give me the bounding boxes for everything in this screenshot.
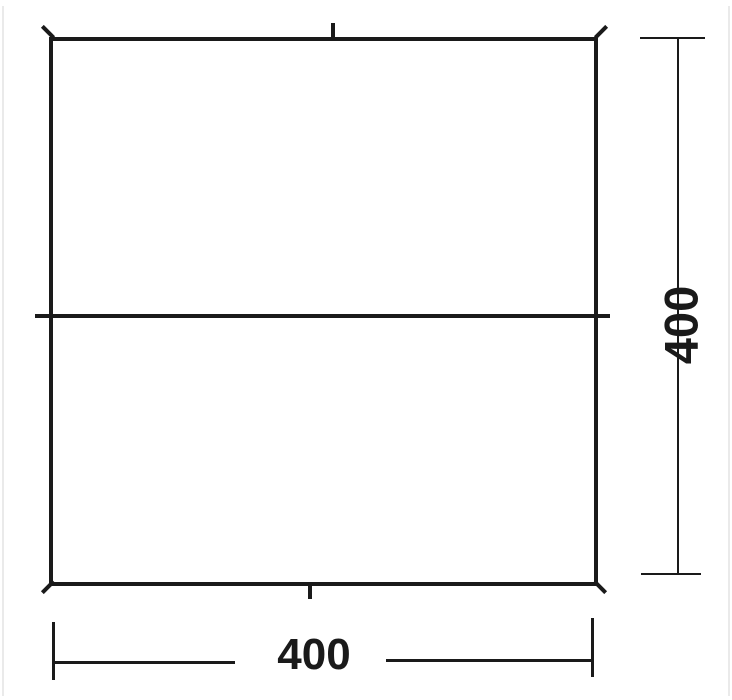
center-fold-line [35, 314, 610, 318]
image-edge-left [2, 6, 4, 696]
width-dimension-cap-right [591, 618, 594, 677]
image-edge-right [728, 6, 730, 696]
corner-tick-bottom-right [593, 580, 607, 594]
height-dimension-label: 400 [658, 286, 705, 364]
midpoint-tick-top [331, 23, 335, 39]
width-dimension-line-right [386, 659, 592, 662]
height-dimension-cap-top [640, 37, 705, 39]
width-dimension-label: 400 [277, 633, 350, 677]
height-dimension-cap-bottom [641, 573, 701, 575]
width-dimension-line-left [53, 661, 235, 664]
corner-tick-top-right [594, 25, 608, 39]
corner-tick-bottom-left [41, 580, 55, 594]
dimension-diagram: 400 400 [0, 0, 732, 700]
midpoint-tick-bottom [308, 584, 312, 599]
corner-tick-top-left [41, 25, 55, 39]
tarp-outline [49, 37, 598, 586]
width-dimension-cap-left [52, 622, 55, 680]
